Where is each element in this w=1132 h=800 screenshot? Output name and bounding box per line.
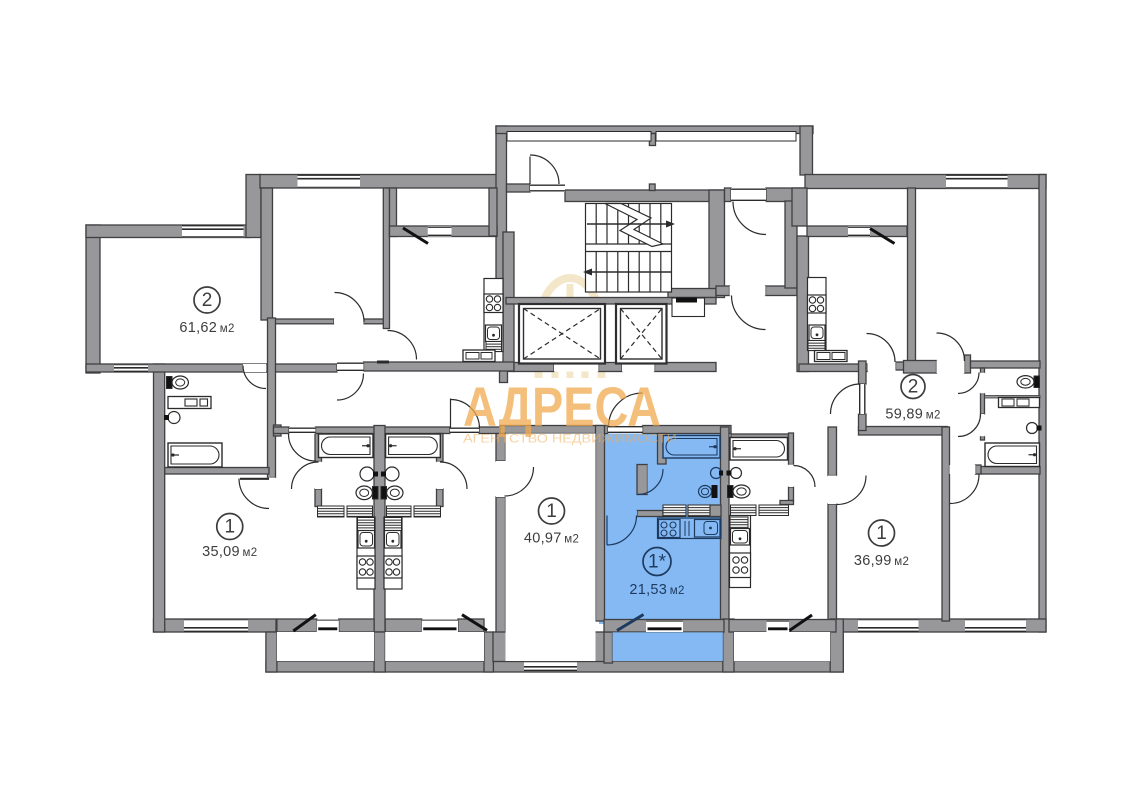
svg-text:21,53 м2: 21,53 м2 [629,582,684,598]
svg-text:1: 1 [546,501,557,522]
svg-text:2: 2 [202,290,213,311]
svg-text:59,89 м2: 59,89 м2 [885,407,940,423]
svg-text:36,99 м2: 36,99 м2 [854,553,909,569]
svg-text:1: 1 [224,517,235,538]
svg-text:61,62 м2: 61,62 м2 [179,320,234,336]
svg-text:АДРЕСА: АДРЕСА [463,375,661,438]
svg-text:40,97 м2: 40,97 м2 [524,531,579,547]
svg-text:1*: 1* [648,552,667,573]
svg-text:35,09 м2: 35,09 м2 [202,544,257,560]
svg-text:1: 1 [876,523,887,544]
svg-text:АГЕНТСТВО НЕДВИЖИМОСТИ: АГЕНТСТВО НЕДВИЖИМОСТИ [463,432,677,446]
svg-text:2: 2 [908,377,919,398]
